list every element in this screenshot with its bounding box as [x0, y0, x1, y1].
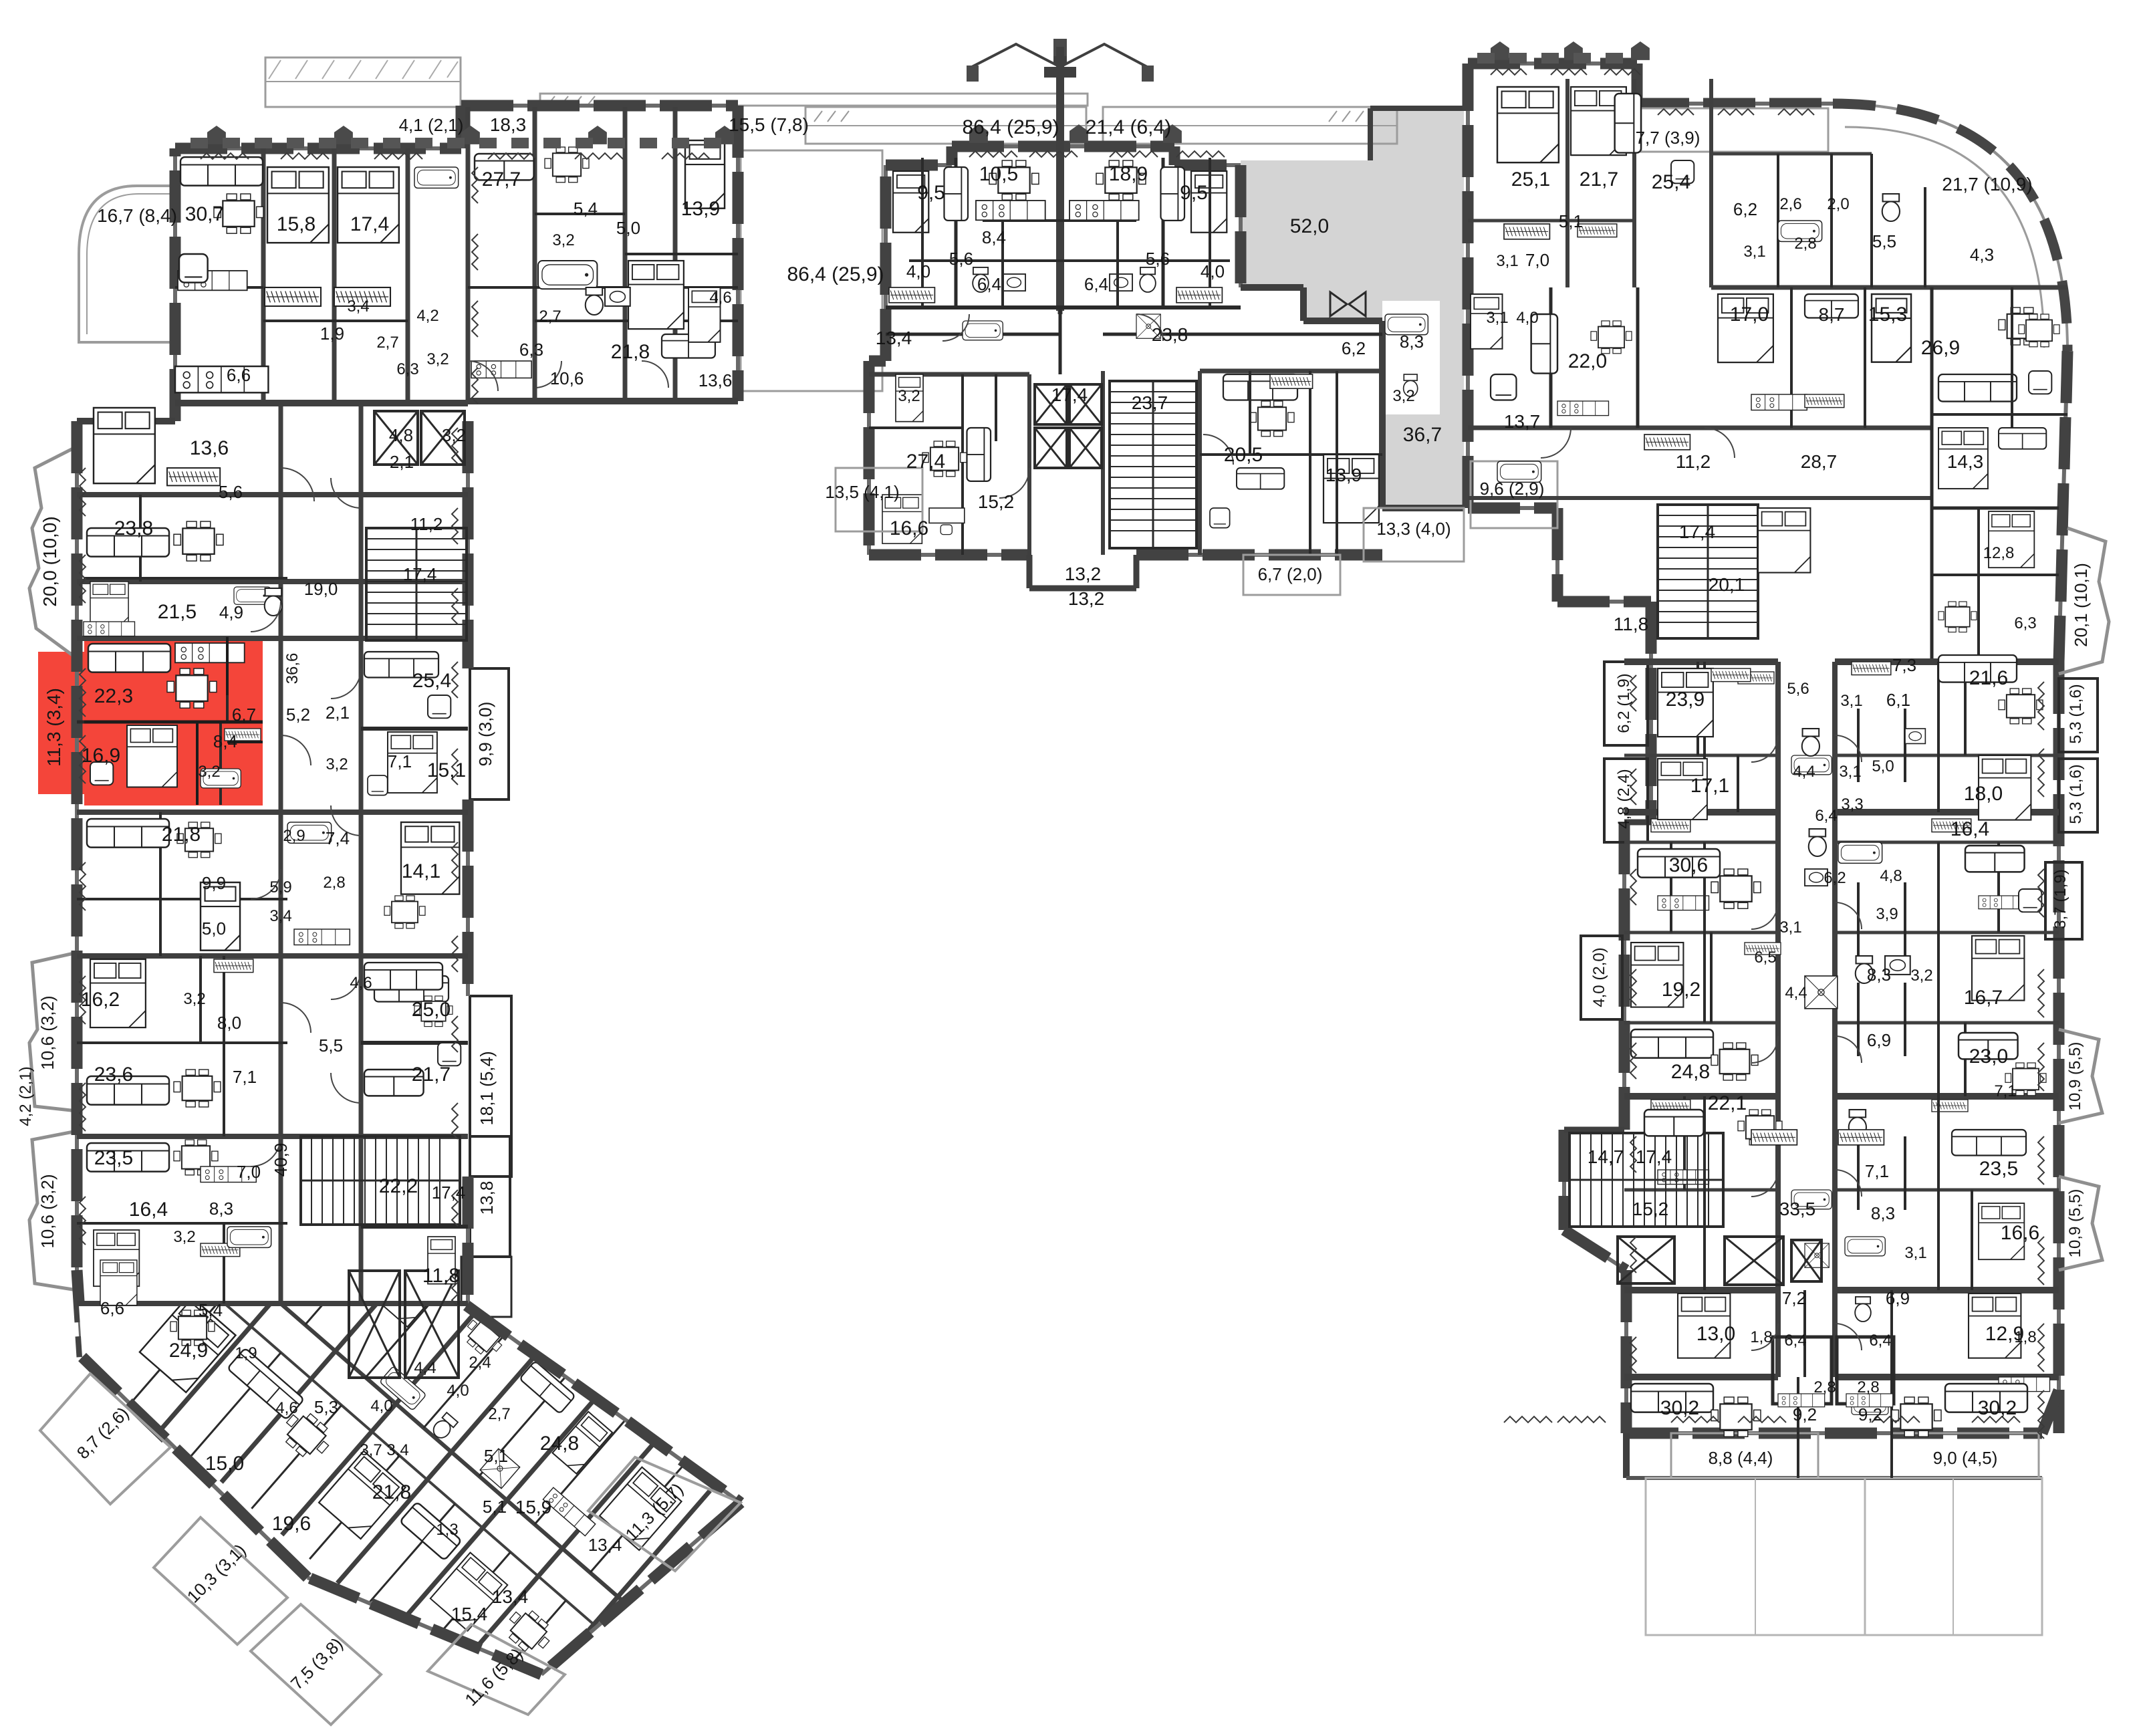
svg-text:16,2: 16,2 [81, 989, 120, 1011]
svg-text:16,4: 16,4 [129, 1199, 168, 1221]
svg-text:3,2: 3,2 [898, 387, 920, 405]
svg-text:13,2: 13,2 [1068, 588, 1105, 609]
svg-text:20,1 (10,1): 20,1 (10,1) [2071, 563, 2091, 647]
svg-text:21,8: 21,8 [372, 1481, 411, 1503]
svg-text:21,7: 21,7 [1580, 168, 1618, 191]
svg-text:3,3: 3,3 [1841, 795, 1863, 814]
svg-text:4,0: 4,0 [447, 1382, 469, 1400]
svg-text:17,1: 17,1 [1690, 775, 1729, 797]
svg-text:15,1: 15,1 [427, 759, 466, 781]
svg-text:16,6: 16,6 [2001, 1222, 2039, 1244]
svg-text:5,6: 5,6 [1146, 249, 1170, 269]
svg-text:3,2: 3,2 [173, 1228, 195, 1246]
svg-text:6,2: 6,2 [1733, 199, 1757, 219]
svg-text:25,0: 25,0 [412, 999, 451, 1021]
svg-text:2,7: 2,7 [376, 334, 398, 352]
svg-text:30,2: 30,2 [1978, 1397, 2017, 1419]
svg-text:6,4: 6,4 [1784, 1332, 1806, 1350]
svg-text:36,6: 36,6 [283, 653, 301, 685]
svg-text:16,6: 16,6 [890, 517, 928, 539]
svg-text:3,7 (1,9): 3,7 (1,9) [2051, 869, 2069, 928]
svg-text:4,8 (2,4): 4,8 (2,4) [1615, 769, 1633, 828]
svg-text:5,1: 5,1 [484, 1446, 508, 1466]
svg-text:13,7: 13,7 [1504, 411, 1541, 432]
svg-text:22,1: 22,1 [1708, 1092, 1747, 1114]
svg-text:20,0 (10,0): 20,0 (10,0) [39, 516, 60, 606]
svg-text:6,6: 6,6 [100, 1298, 124, 1318]
svg-text:9,2: 9,2 [1793, 1404, 1817, 1424]
svg-text:3,4: 3,4 [386, 1441, 408, 1459]
svg-text:8,4: 8,4 [213, 731, 237, 751]
svg-text:4,1 (2,1): 4,1 (2,1) [399, 115, 464, 135]
svg-text:14,3: 14,3 [1947, 451, 1984, 472]
svg-text:13,8: 13,8 [477, 1181, 497, 1215]
svg-text:6,4: 6,4 [1815, 807, 1837, 825]
svg-text:21,8: 21,8 [162, 824, 201, 846]
svg-text:27,4: 27,4 [906, 451, 945, 473]
svg-text:1,8: 1,8 [1750, 1328, 1772, 1346]
svg-text:15,8: 15,8 [277, 213, 316, 235]
svg-text:23,0: 23,0 [1969, 1045, 2008, 1068]
svg-text:2,9: 2,9 [283, 827, 305, 845]
svg-text:13,0: 13,0 [1696, 1323, 1735, 1345]
svg-text:52,0: 52,0 [1290, 215, 1329, 237]
svg-text:6,4: 6,4 [1084, 274, 1108, 294]
svg-text:7,4: 7,4 [326, 828, 350, 848]
svg-text:21,7: 21,7 [412, 1064, 451, 1086]
svg-text:21,4 (6,4): 21,4 (6,4) [1086, 116, 1171, 138]
svg-text:86,4 (25,9): 86,4 (25,9) [962, 116, 1059, 138]
svg-text:15,9: 15,9 [515, 1497, 552, 1517]
svg-text:33,5: 33,5 [1779, 1199, 1816, 1219]
svg-text:23,6: 23,6 [94, 1064, 133, 1086]
svg-text:17,4: 17,4 [403, 564, 437, 584]
svg-text:20,5: 20,5 [1224, 444, 1263, 466]
svg-text:5,6: 5,6 [949, 249, 973, 269]
svg-text:18,3: 18,3 [490, 114, 527, 135]
svg-text:4,0: 4,0 [1201, 261, 1225, 281]
svg-text:10,5: 10,5 [979, 163, 1018, 185]
svg-text:4,3: 4,3 [1970, 245, 1994, 265]
svg-text:23,5: 23,5 [94, 1147, 133, 1169]
svg-text:16,7: 16,7 [1964, 987, 2003, 1009]
svg-text:13,6: 13,6 [190, 437, 229, 459]
svg-text:5,0: 5,0 [1872, 757, 1894, 775]
svg-text:2,0: 2,0 [1827, 195, 1849, 213]
svg-text:8,3: 8,3 [1400, 332, 1424, 352]
svg-text:5,0: 5,0 [202, 918, 226, 939]
svg-text:3,1: 3,1 [1496, 252, 1518, 270]
svg-text:14,7: 14,7 [1588, 1146, 1624, 1167]
svg-text:7,7 (3,9): 7,7 (3,9) [1636, 128, 1701, 148]
svg-text:24,8: 24,8 [1671, 1061, 1710, 1083]
svg-text:9,5: 9,5 [917, 182, 945, 204]
svg-text:8,3: 8,3 [1867, 965, 1891, 985]
svg-text:18,0: 18,0 [1964, 783, 2003, 805]
svg-text:27,7: 27,7 [482, 168, 521, 191]
svg-text:24,8: 24,8 [540, 1433, 579, 1455]
svg-text:3,1: 3,1 [1486, 309, 1508, 327]
svg-text:4,4: 4,4 [1785, 984, 1807, 1002]
svg-text:11,2: 11,2 [410, 514, 443, 534]
svg-text:8,3: 8,3 [209, 1199, 233, 1219]
svg-text:23,5: 23,5 [1979, 1158, 2018, 1180]
svg-text:10,9 (5,5): 10,9 (5,5) [2066, 1042, 2084, 1111]
svg-text:19,0: 19,0 [304, 579, 338, 599]
svg-text:13,4: 13,4 [588, 1535, 622, 1555]
svg-text:6,1: 6,1 [1886, 690, 1910, 710]
svg-text:6,2 (1,9): 6,2 (1,9) [1615, 673, 1633, 733]
svg-text:3,1: 3,1 [1904, 1244, 1926, 1262]
svg-text:8,3: 8,3 [1871, 1203, 1895, 1223]
svg-text:1,9: 1,9 [320, 324, 344, 344]
svg-text:9,0 (4,5): 9,0 (4,5) [1933, 1448, 1998, 1468]
svg-text:19,6: 19,6 [272, 1513, 311, 1535]
svg-text:36,7: 36,7 [1403, 424, 1442, 446]
svg-text:13,3 (4,0): 13,3 (4,0) [1376, 519, 1451, 539]
svg-text:30,6: 30,6 [1669, 854, 1708, 876]
svg-text:5,1: 5,1 [483, 1497, 507, 1517]
svg-text:1,3: 1,3 [436, 1521, 458, 1539]
svg-text:9,5: 9,5 [1180, 182, 1208, 204]
svg-text:21,7 (10,9): 21,7 (10,9) [1942, 174, 2032, 195]
svg-text:18,1 (5,4): 18,1 (5,4) [477, 1051, 497, 1125]
svg-text:10,9 (5,5): 10,9 (5,5) [2066, 1189, 2084, 1258]
svg-text:2,8: 2,8 [1794, 235, 1816, 253]
svg-text:5,1: 5,1 [1559, 211, 1583, 231]
svg-text:2,8: 2,8 [1813, 1378, 1836, 1396]
svg-text:13,9: 13,9 [681, 198, 720, 220]
svg-text:13,4: 13,4 [876, 328, 912, 348]
svg-text:3,2: 3,2 [426, 350, 449, 368]
svg-text:3,9: 3,9 [1876, 905, 1898, 923]
svg-text:25,4: 25,4 [1652, 171, 1690, 193]
svg-text:2,8: 2,8 [1857, 1378, 1879, 1396]
svg-text:4,0 (2,0): 4,0 (2,0) [1590, 947, 1608, 1007]
svg-text:4,0: 4,0 [906, 261, 930, 281]
svg-text:22,3: 22,3 [94, 685, 133, 707]
svg-text:23,8: 23,8 [114, 517, 153, 539]
svg-text:11,3 (3,4): 11,3 (3,4) [43, 688, 64, 767]
svg-text:11,8: 11,8 [422, 1265, 460, 1287]
svg-text:9,6 (2,9): 9,6 (2,9) [1480, 479, 1545, 499]
svg-text:5,3 (1,6): 5,3 (1,6) [2067, 684, 2085, 743]
svg-text:2,7: 2,7 [488, 1405, 510, 1423]
svg-text:11,2: 11,2 [1676, 451, 1711, 472]
svg-text:10,6 (3,2): 10,6 (3,2) [37, 1174, 57, 1248]
svg-text:7,0: 7,0 [1525, 250, 1549, 270]
svg-text:17,4: 17,4 [1051, 384, 1088, 405]
svg-text:1,9: 1,9 [235, 1344, 257, 1362]
svg-text:16,4: 16,4 [1951, 818, 1989, 840]
svg-text:4,6: 4,6 [709, 289, 731, 307]
svg-text:3,1: 3,1 [1839, 763, 1861, 781]
svg-text:5,5: 5,5 [1872, 231, 1896, 251]
svg-text:4,8: 4,8 [1880, 867, 1902, 885]
svg-text:23,9: 23,9 [1666, 689, 1705, 711]
svg-text:40,9: 40,9 [271, 1143, 291, 1177]
svg-text:86,4 (25,9): 86,4 (25,9) [787, 263, 884, 285]
svg-text:22,0: 22,0 [1568, 350, 1607, 372]
svg-text:23,7: 23,7 [1132, 392, 1168, 413]
svg-text:4,8: 4,8 [389, 425, 413, 445]
svg-text:9,2: 9,2 [1858, 1404, 1882, 1424]
svg-text:13,9: 13,9 [1326, 465, 1362, 485]
svg-text:15,2: 15,2 [978, 491, 1015, 512]
svg-text:1,8: 1,8 [2014, 1328, 2036, 1346]
svg-text:21,6: 21,6 [1969, 667, 2008, 689]
svg-text:17,4: 17,4 [350, 213, 389, 235]
svg-text:8,4: 8,4 [982, 227, 1006, 247]
svg-text:4,0: 4,0 [1516, 309, 1538, 327]
svg-text:11,8: 11,8 [1614, 614, 1648, 634]
svg-text:6,3: 6,3 [396, 360, 418, 378]
svg-text:5,9: 5,9 [269, 878, 291, 896]
svg-text:12,8: 12,8 [1983, 544, 2015, 562]
svg-text:4,6: 4,6 [275, 1399, 297, 1417]
svg-text:16,9: 16,9 [82, 745, 120, 767]
svg-text:3,2: 3,2 [442, 425, 466, 445]
svg-text:17,4: 17,4 [432, 1183, 466, 1203]
svg-text:5,4: 5,4 [574, 199, 598, 219]
svg-text:5,6: 5,6 [1787, 680, 1809, 698]
svg-text:13,4: 13,4 [492, 1586, 529, 1607]
svg-text:6,7 (2,0): 6,7 (2,0) [1258, 564, 1323, 584]
svg-text:5,5: 5,5 [319, 1035, 343, 1056]
svg-text:2,6: 2,6 [1779, 195, 1801, 213]
svg-text:13,2: 13,2 [1065, 564, 1102, 584]
svg-text:3,2: 3,2 [198, 763, 220, 781]
svg-text:26,9: 26,9 [1921, 337, 1960, 359]
svg-text:3,7: 3,7 [360, 1441, 382, 1459]
svg-text:24,9: 24,9 [169, 1340, 208, 1362]
svg-text:6,3: 6,3 [519, 340, 543, 360]
svg-text:21,5: 21,5 [158, 601, 197, 623]
svg-text:2,1: 2,1 [326, 703, 350, 723]
svg-text:6,2: 6,2 [1342, 338, 1366, 358]
svg-text:5,3: 5,3 [314, 1397, 338, 1417]
svg-text:6,6: 6,6 [227, 365, 251, 385]
svg-text:7,3: 7,3 [1892, 655, 1916, 675]
svg-text:3,1: 3,1 [1779, 918, 1801, 937]
svg-text:5,0: 5,0 [616, 218, 640, 238]
svg-text:7,1: 7,1 [1865, 1161, 1889, 1181]
svg-text:30,2: 30,2 [1660, 1397, 1699, 1419]
svg-text:4,6: 4,6 [350, 974, 372, 992]
svg-text:8,0: 8,0 [217, 1013, 241, 1033]
svg-text:17,4: 17,4 [1679, 521, 1716, 542]
svg-text:4,4: 4,4 [1793, 763, 1815, 781]
svg-text:4,9: 4,9 [219, 602, 243, 622]
svg-text:19,2: 19,2 [1662, 979, 1701, 1001]
svg-text:14,1: 14,1 [402, 860, 441, 882]
svg-text:9,9: 9,9 [202, 873, 226, 893]
svg-text:2,4: 2,4 [469, 1354, 491, 1372]
svg-text:7,1: 7,1 [233, 1067, 257, 1087]
svg-text:5,6: 5,6 [219, 482, 243, 502]
svg-text:17,4: 17,4 [1636, 1146, 1672, 1167]
svg-text:15,0: 15,0 [205, 1453, 244, 1475]
svg-text:16,7 (8,4): 16,7 (8,4) [97, 205, 177, 226]
svg-text:5,2: 5,2 [286, 705, 310, 725]
svg-text:3,1: 3,1 [1743, 243, 1765, 261]
svg-text:7,1: 7,1 [1994, 1082, 2016, 1100]
svg-text:3,2: 3,2 [326, 755, 348, 773]
svg-text:10,6: 10,6 [550, 368, 584, 388]
svg-text:30,7: 30,7 [185, 203, 224, 225]
svg-text:4,2 (2,1): 4,2 (2,1) [17, 1066, 35, 1126]
svg-text:13,6: 13,6 [699, 370, 733, 390]
svg-text:17,0: 17,0 [1730, 303, 1769, 326]
svg-text:21,8: 21,8 [611, 341, 650, 363]
svg-text:2,8: 2,8 [323, 874, 345, 892]
svg-text:15,3: 15,3 [1868, 303, 1907, 326]
svg-text:13,5 (4,1): 13,5 (4,1) [825, 482, 899, 502]
svg-text:2,7: 2,7 [539, 307, 561, 326]
svg-text:6,2: 6,2 [1823, 869, 1846, 887]
svg-text:15,4: 15,4 [451, 1604, 488, 1624]
svg-text:20,1: 20,1 [1709, 574, 1745, 595]
svg-text:4,0: 4,0 [370, 1397, 392, 1415]
svg-text:6,4: 6,4 [977, 274, 1001, 294]
svg-text:23,8: 23,8 [1152, 324, 1188, 345]
svg-text:7,1: 7,1 [388, 751, 412, 771]
svg-text:4,4: 4,4 [414, 1359, 436, 1377]
svg-text:8,7: 8,7 [1819, 304, 1845, 325]
svg-text:6,3: 6,3 [2014, 614, 2036, 632]
svg-text:6,4: 6,4 [1869, 1332, 1891, 1350]
svg-text:3,4: 3,4 [347, 297, 369, 316]
svg-text:6,9: 6,9 [1867, 1030, 1891, 1050]
svg-text:22,2: 22,2 [379, 1175, 418, 1197]
svg-text:25,1: 25,1 [1511, 168, 1550, 191]
svg-text:10,6 (3,2): 10,6 (3,2) [37, 995, 57, 1070]
svg-text:3,2: 3,2 [183, 990, 205, 1008]
svg-text:3,2: 3,2 [1910, 967, 1932, 985]
svg-text:9,9 (3,0): 9,9 (3,0) [475, 702, 495, 767]
svg-text:4,2: 4,2 [416, 307, 438, 325]
svg-text:8,8 (4,4): 8,8 (4,4) [1709, 1448, 1773, 1468]
svg-text:25,4: 25,4 [412, 670, 451, 692]
svg-text:3,4: 3,4 [269, 907, 291, 925]
svg-text:18,9: 18,9 [1109, 163, 1148, 185]
svg-text:2,1: 2,1 [390, 452, 414, 472]
svg-text:7,0: 7,0 [237, 1162, 261, 1182]
svg-text:3,1: 3,1 [1840, 692, 1862, 710]
svg-text:3,2: 3,2 [552, 231, 574, 249]
svg-text:6,7: 6,7 [232, 705, 256, 725]
svg-text:15,2: 15,2 [1632, 1199, 1669, 1219]
svg-text:6,9: 6,9 [1886, 1288, 1910, 1308]
svg-text:5,3 (1,6): 5,3 (1,6) [2067, 764, 2085, 824]
svg-text:28,7: 28,7 [1801, 451, 1838, 472]
svg-text:6,5: 6,5 [1754, 949, 1776, 967]
svg-text:15,5 (7,8): 15,5 (7,8) [729, 114, 809, 135]
svg-text:5,4: 5,4 [199, 1300, 223, 1320]
svg-text:7,2: 7,2 [1782, 1288, 1806, 1308]
svg-text:3,2: 3,2 [1392, 387, 1414, 405]
